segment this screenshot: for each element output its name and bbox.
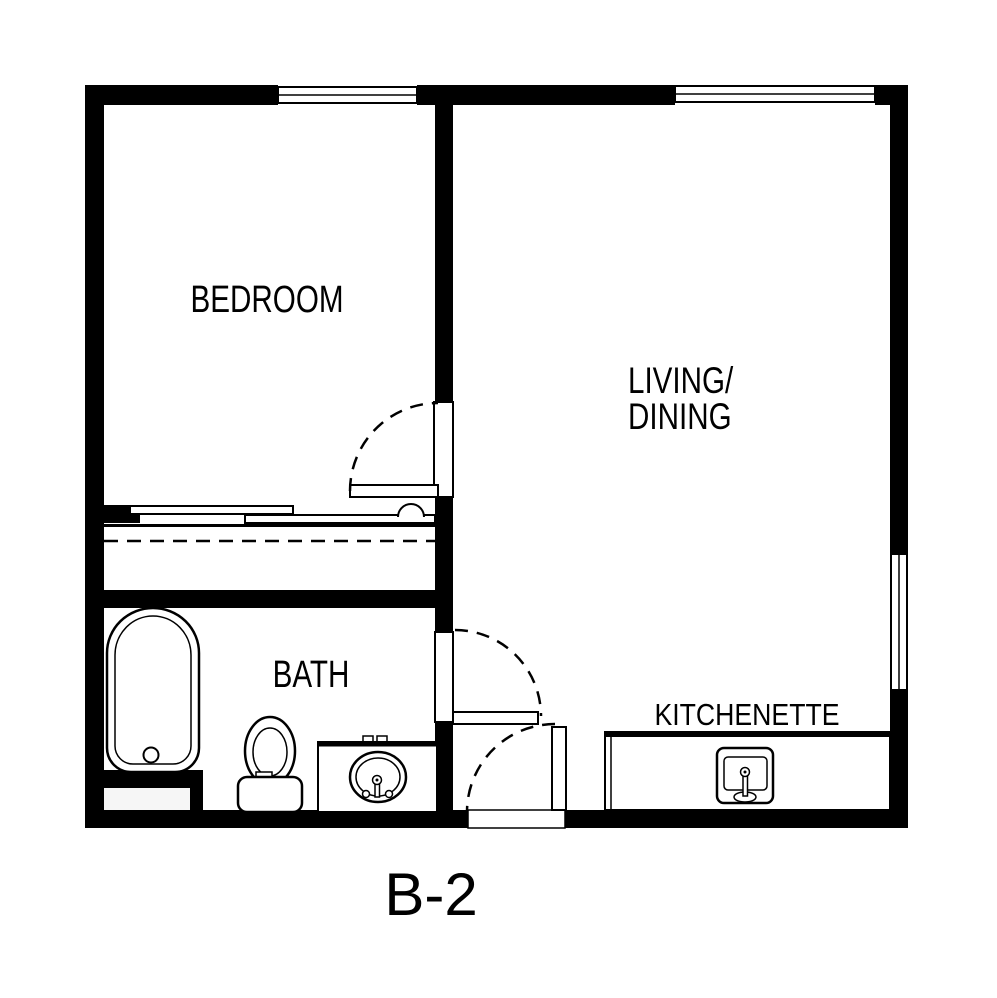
living-top-window <box>675 86 875 102</box>
background <box>0 0 997 998</box>
wall-segment-left <box>85 85 104 828</box>
unit-label: B-2 <box>384 861 477 928</box>
vanity-handle-left <box>363 791 370 798</box>
kitchen-sink <box>717 748 773 803</box>
wall-interior-upper <box>435 105 453 402</box>
wall-segment-right-upper <box>890 85 908 554</box>
entry-door-leaf <box>552 727 566 810</box>
bathtub-drain <box>144 748 159 763</box>
bathtub-inner-line <box>115 616 191 764</box>
vanity-faucet-dot <box>376 779 379 782</box>
bath-label: BATH <box>273 654 350 696</box>
vanity-faucet-stem <box>375 784 380 797</box>
living-dining-label-line1: LIVING/ <box>628 361 734 402</box>
closet-sliding-panel-rear <box>130 506 293 514</box>
bedroom-door-opening <box>434 402 453 497</box>
bedroom-door-leaf <box>350 485 438 497</box>
kitchen-faucet-dot <box>744 771 747 774</box>
vanity-sink <box>318 736 437 812</box>
kitchenette-counter <box>605 732 890 810</box>
vanity-handle-right <box>386 791 393 798</box>
entry-door-opening <box>468 810 565 828</box>
bedroom-window <box>278 87 417 103</box>
wall-segment-top-left <box>85 85 278 105</box>
bedroom-label: BEDROOM <box>190 279 343 321</box>
wall-interior-middle <box>435 497 453 632</box>
wall-segment-bottom-right <box>565 810 908 828</box>
floor-plan-page: BEDROOM LIVING/ DINING BATH KITCHENETTE … <box>0 0 997 998</box>
kitchenette-label: KITCHENETTE <box>654 698 839 732</box>
floor-plan-drawing: BEDROOM LIVING/ DINING BATH KITCHENETTE … <box>0 0 997 998</box>
wall-closet-bottom <box>104 590 453 608</box>
bathtub <box>107 608 199 772</box>
kitchen-faucet-stem <box>743 776 748 796</box>
wall-segment-top-middle <box>417 85 675 105</box>
bath-door-opening <box>435 632 453 722</box>
wall-segment-right-lower <box>890 690 908 828</box>
toilet-bowl-inner <box>253 728 287 776</box>
toilet-tank <box>238 777 302 812</box>
bath-door-leaf <box>453 712 538 724</box>
living-right-window <box>891 554 907 690</box>
living-dining-label-line2: DINING <box>628 397 732 438</box>
bath-wall-niche <box>104 788 190 810</box>
